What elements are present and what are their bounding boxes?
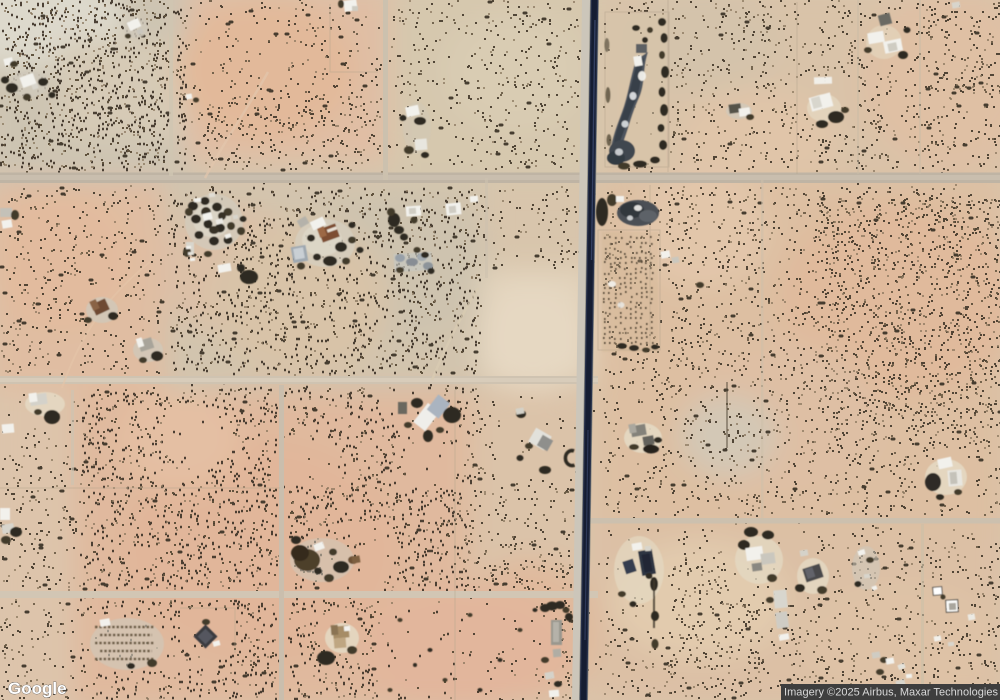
svg-text:Google: Google <box>8 679 67 698</box>
svg-text:Imagery ©2025 Airbus, Maxar Te: Imagery ©2025 Airbus, Maxar Technologies <box>784 687 999 699</box>
